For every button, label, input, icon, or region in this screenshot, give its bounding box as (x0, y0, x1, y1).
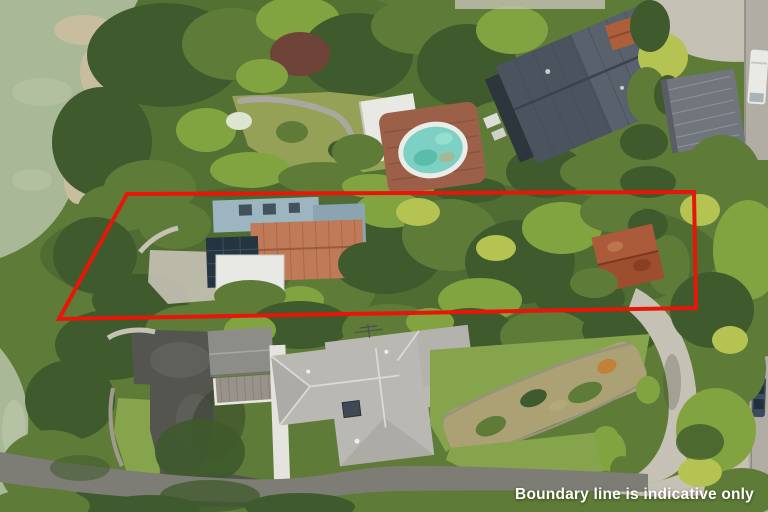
aerial-photo: Boundary line is indicative only (0, 0, 768, 512)
tree-over-house (338, 242, 398, 286)
tree-over-shed (570, 268, 618, 298)
aerial-scene (0, 0, 768, 512)
tree-over-poolhouse (332, 134, 384, 170)
boundary-disclaimer-text: Boundary line is indicative only (515, 486, 754, 504)
flowering-bush (226, 112, 252, 130)
skylight (342, 401, 361, 418)
garage (207, 327, 274, 377)
top-walkway (455, 0, 605, 9)
